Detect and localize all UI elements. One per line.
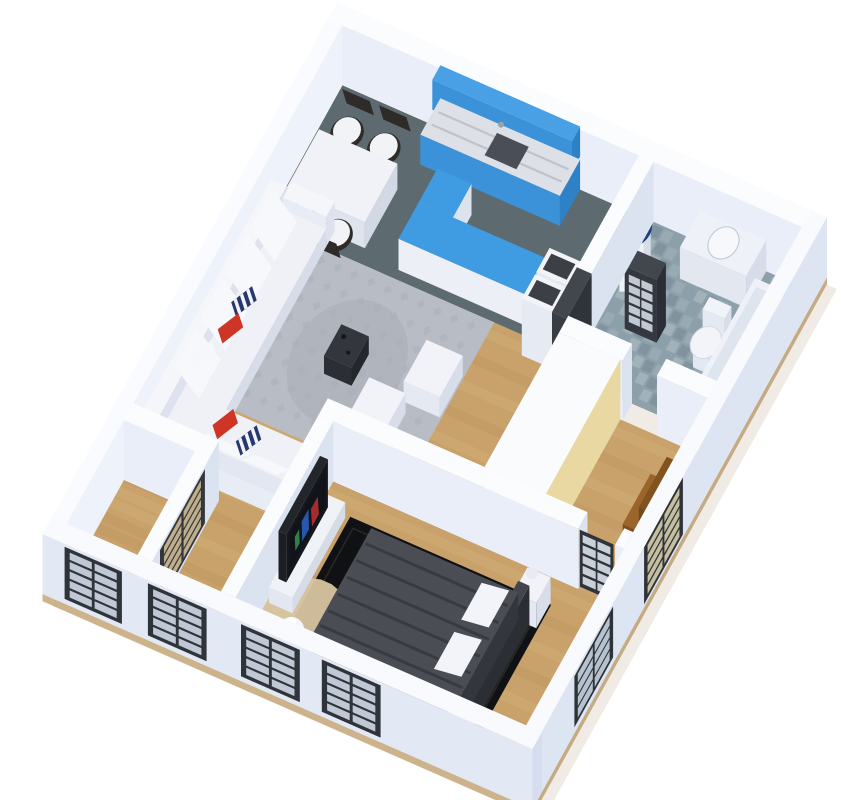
tv-panel-face-sw bbox=[279, 531, 287, 583]
coffee-table-decor-2 bbox=[346, 351, 350, 355]
apartment-floorplan-3d: 3D isometric floor plan render of a one-… bbox=[0, 0, 841, 800]
nightstand-lamp-1 bbox=[526, 567, 538, 579]
floorplan-render-stage: 3D isometric floor plan render of a one-… bbox=[0, 0, 841, 800]
kitchen-faucet bbox=[498, 122, 504, 128]
coffee-table-decor-1 bbox=[341, 334, 346, 339]
